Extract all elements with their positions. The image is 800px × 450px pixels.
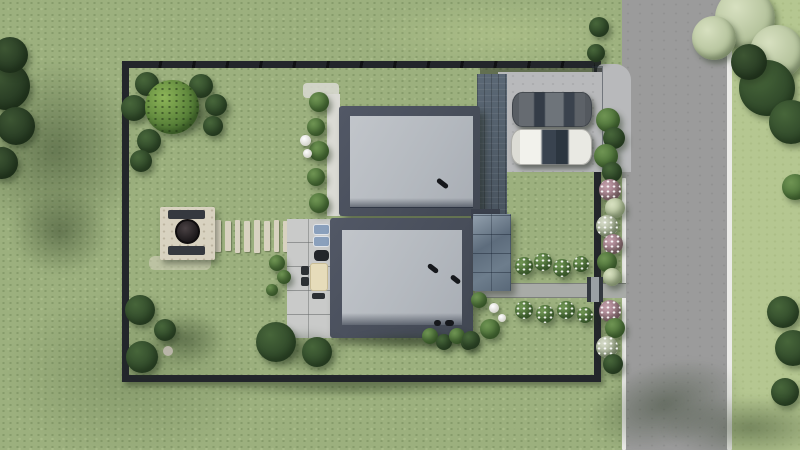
flower-bush bbox=[573, 256, 589, 272]
stepping-stone bbox=[215, 220, 221, 252]
shrub bbox=[277, 270, 291, 284]
flower-bush bbox=[534, 253, 552, 271]
flower-bush bbox=[577, 307, 593, 323]
flower-bush bbox=[603, 234, 623, 254]
shrub bbox=[767, 296, 799, 328]
tree-canopy bbox=[731, 44, 767, 80]
gate-walkway bbox=[600, 284, 626, 298]
flower-bush bbox=[515, 301, 533, 319]
shrub bbox=[307, 118, 325, 136]
shrub bbox=[130, 150, 152, 172]
tree-shadow-west bbox=[10, 190, 110, 275]
grill bbox=[314, 250, 329, 261]
shrub bbox=[256, 322, 296, 362]
shrub bbox=[269, 255, 285, 271]
chair bbox=[301, 266, 309, 275]
shrub bbox=[309, 92, 329, 112]
fence-post-marks bbox=[129, 61, 595, 68]
lounge-cushion bbox=[313, 236, 330, 247]
dark-paver-strip bbox=[477, 74, 507, 216]
shrub bbox=[126, 341, 158, 373]
stepping-stone bbox=[235, 220, 241, 253]
stone-ball bbox=[163, 346, 173, 356]
stepping-stone bbox=[244, 221, 250, 252]
shrub bbox=[307, 168, 325, 186]
shrub bbox=[203, 116, 223, 136]
stepping-stone-path bbox=[215, 218, 289, 254]
roof-vent bbox=[445, 320, 454, 326]
house-b-flat-roof bbox=[342, 230, 462, 325]
house-a-flat-roof bbox=[350, 116, 473, 207]
shrub bbox=[205, 94, 227, 116]
glass-canopy bbox=[473, 214, 511, 291]
parked-car-dark bbox=[512, 92, 592, 127]
chair bbox=[312, 293, 325, 299]
flower-bush bbox=[557, 301, 575, 319]
shrub bbox=[462, 331, 480, 349]
tree-canopy bbox=[692, 16, 736, 60]
shrub bbox=[589, 17, 609, 37]
dining-table bbox=[310, 263, 328, 291]
shrub bbox=[302, 337, 332, 367]
shrub bbox=[266, 284, 278, 296]
tree-shadow-on-road bbox=[660, 395, 800, 450]
stepping-stone bbox=[254, 220, 260, 253]
flower-bush bbox=[536, 305, 554, 323]
fire-bowl bbox=[175, 219, 200, 244]
shrub bbox=[121, 95, 147, 121]
flower-bush bbox=[515, 257, 533, 275]
flower-bush bbox=[553, 259, 571, 277]
parked-car-white bbox=[511, 129, 592, 165]
house-b-roof-shadow-band bbox=[342, 313, 462, 325]
fire-pit-bench-north bbox=[168, 210, 205, 219]
roof-vent bbox=[434, 320, 441, 326]
aerial-site-render bbox=[0, 0, 800, 450]
shrub bbox=[480, 319, 500, 339]
shrub bbox=[471, 292, 487, 308]
garden-lamp bbox=[303, 149, 312, 158]
garden-lamp bbox=[498, 314, 506, 322]
lounge-cushion bbox=[313, 224, 330, 235]
stepping-stone bbox=[274, 220, 280, 252]
fence-shadow bbox=[200, 382, 500, 396]
house-a-roof-shadow-band bbox=[350, 198, 473, 208]
shrub bbox=[309, 193, 329, 213]
chair bbox=[301, 277, 309, 286]
garden-gate bbox=[587, 277, 603, 302]
garden-lamp bbox=[300, 135, 311, 146]
stepping-stone bbox=[225, 221, 231, 251]
fire-pit-bench-south bbox=[168, 246, 205, 255]
shrub bbox=[603, 268, 621, 286]
shrub bbox=[309, 141, 329, 161]
ornamental-tree bbox=[145, 80, 199, 134]
garden-lamp bbox=[489, 303, 499, 313]
shrub bbox=[587, 44, 605, 62]
hedge bbox=[603, 354, 623, 374]
stepping-stone bbox=[264, 221, 270, 251]
shrub bbox=[125, 295, 155, 325]
shrub bbox=[154, 319, 176, 341]
hedge bbox=[605, 318, 625, 338]
